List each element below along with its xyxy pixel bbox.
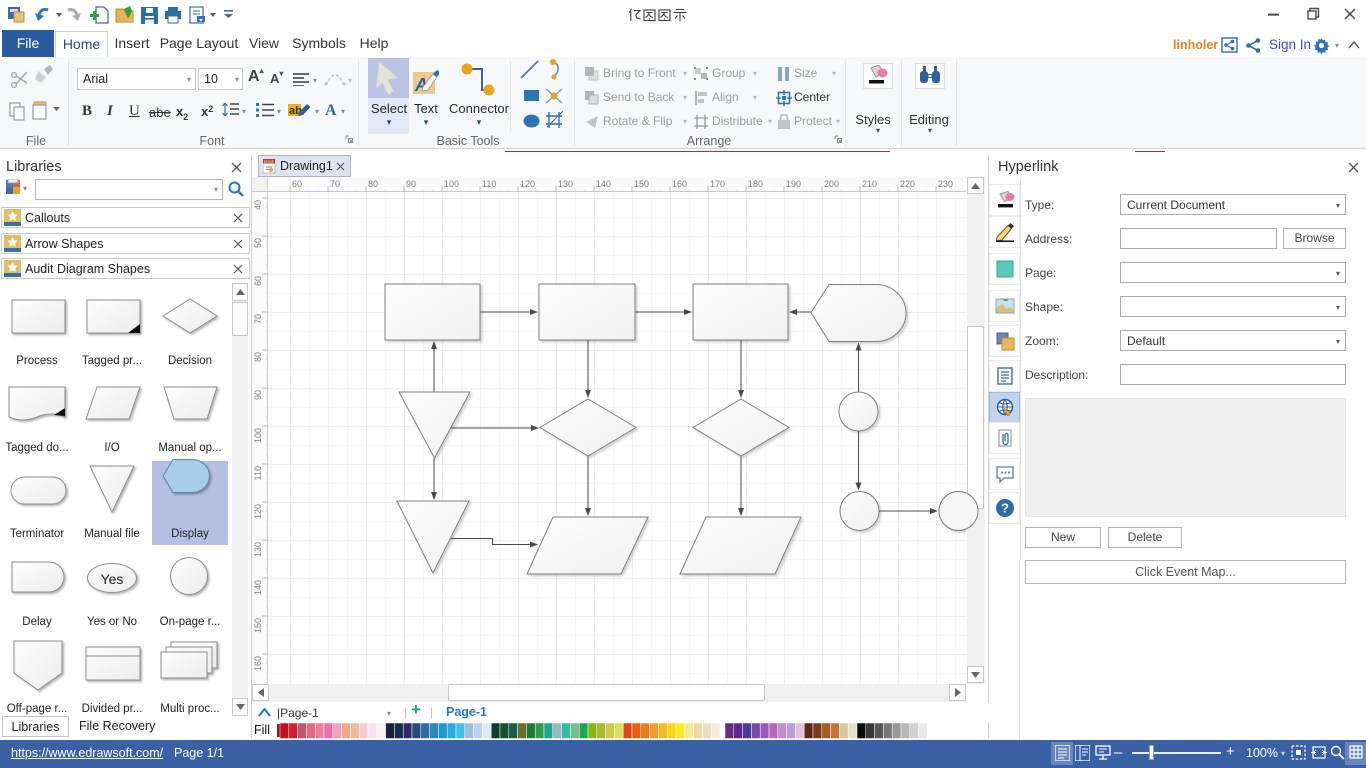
- svg-text:70: 70: [253, 314, 263, 324]
- svg-text:140: 140: [596, 179, 611, 189]
- svg-text:150: 150: [253, 618, 263, 633]
- svg-text:100: 100: [253, 428, 263, 443]
- svg-text:100: 100: [444, 179, 459, 189]
- svg-text:Yes: Yes: [101, 571, 124, 587]
- svg-text:80: 80: [253, 352, 263, 362]
- svg-text:110: 110: [482, 179, 496, 189]
- svg-text:?: ?: [1001, 501, 1009, 516]
- svg-text:EDGE: EDGE: [264, 160, 275, 164]
- svg-text:120: 120: [520, 179, 535, 189]
- svg-text:210: 210: [862, 179, 877, 189]
- svg-text:60: 60: [292, 179, 302, 189]
- svg-text:230: 230: [938, 179, 953, 189]
- svg-text:170: 170: [710, 179, 725, 189]
- svg-text:130: 130: [253, 542, 263, 557]
- svg-text:120: 120: [253, 504, 263, 519]
- svg-text:50: 50: [253, 238, 263, 248]
- svg-text:110: 110: [253, 466, 263, 480]
- svg-text:190: 190: [786, 179, 801, 189]
- svg-text:160: 160: [672, 179, 687, 189]
- svg-text:130: 130: [558, 179, 573, 189]
- svg-text:90: 90: [406, 179, 416, 189]
- svg-text:200: 200: [824, 179, 839, 189]
- svg-text:80: 80: [368, 179, 378, 189]
- svg-text:60: 60: [253, 276, 263, 286]
- svg-text:220: 220: [900, 179, 915, 189]
- svg-text:70: 70: [330, 179, 340, 189]
- svg-text:140: 140: [253, 580, 263, 595]
- svg-text:150: 150: [634, 179, 649, 189]
- svg-text:40: 40: [253, 200, 263, 210]
- svg-text:180: 180: [748, 179, 763, 189]
- svg-text:90: 90: [253, 390, 263, 400]
- svg-text:160: 160: [253, 656, 263, 671]
